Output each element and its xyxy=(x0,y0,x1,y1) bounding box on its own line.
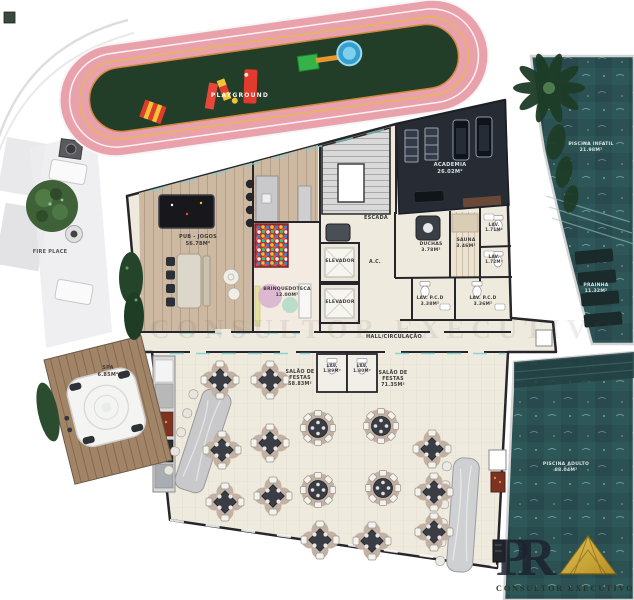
label-brinquedoteca: BRINQUEDOTECA12.00m² xyxy=(256,287,318,299)
logo-initials: PR xyxy=(496,535,558,581)
label-playground: PLAYGROUND xyxy=(205,92,275,100)
label-elevador-2: ELEVADOR xyxy=(321,300,359,306)
label-piscina-infantil: PISCINA INFATIL21.98m² xyxy=(565,142,617,154)
label-academia: ACADEMIA26.02m² xyxy=(419,162,481,176)
label-spa: SPA6.85m² xyxy=(86,365,130,378)
label-pub-jogos: PUB - JOGOS56.78m² xyxy=(168,234,228,247)
grill-icon xyxy=(491,472,505,492)
gym-room xyxy=(396,100,509,214)
label-prainha: PRAINHA11.32m² xyxy=(570,283,622,295)
gym-bench xyxy=(414,190,445,203)
sauna-bench xyxy=(452,214,478,232)
label-lav-pcd-1: LAV. P.C.D3.38m² xyxy=(404,296,456,307)
site-plan-graphics xyxy=(0,0,634,600)
pyramid-logo-icon xyxy=(558,533,618,581)
logo-tagline: CONSULTOR EXECUTIVO xyxy=(496,584,632,593)
pub-table xyxy=(177,254,201,308)
label-escada: ESCADA xyxy=(356,215,396,222)
label-fire-place: FIRE PLACE xyxy=(18,249,82,256)
cabinet xyxy=(298,186,311,222)
sink-icon xyxy=(484,214,494,220)
snooker-table xyxy=(159,195,214,228)
pouf xyxy=(228,288,240,300)
pouf xyxy=(223,269,239,285)
utility-box xyxy=(4,12,15,23)
label-ac: A.C. xyxy=(362,260,388,266)
label-salao-festas-2: SALÃO DE FESTAS71.35m² xyxy=(367,371,419,390)
label-sauna: SAUNA3.46m² xyxy=(445,238,487,250)
tree xyxy=(26,180,78,232)
label-elevador-1: ELEVADOR xyxy=(321,259,359,265)
label-salao-festas-1: SALÃO DE FESTAS58.83m² xyxy=(274,370,326,389)
ball-pit xyxy=(255,224,288,267)
label-lav-pcd-2: LAV. P.C.D3.36m² xyxy=(456,296,510,307)
label-lav-2: LAV.1.72m² xyxy=(479,254,509,265)
label-piscina-adulto: PISCINA ADULTO88.04m² xyxy=(540,462,592,474)
ac-unit xyxy=(326,224,350,241)
logo: PR CONSULTOR EXECUTIVO xyxy=(496,533,632,593)
floorplan-rendering: PLAYGROUND FIRE PLACE PUB - JOGOS56.78m²… xyxy=(0,0,634,600)
label-hall: HALL/CIRCULAÇÃO xyxy=(342,334,446,341)
label-lav-1: LAV.1.71m² xyxy=(479,222,509,233)
